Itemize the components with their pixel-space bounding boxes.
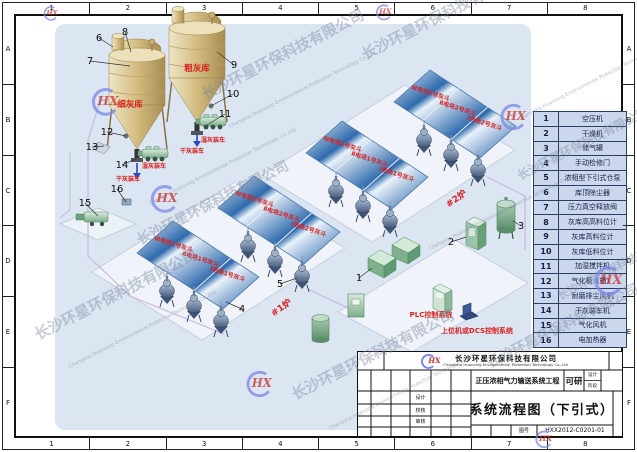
air-dryer	[466, 217, 486, 250]
legend-item-label: 储气罐	[559, 142, 626, 156]
air-tank-2	[312, 315, 329, 344]
frame-rows-left: ABCDEF	[2, 14, 14, 438]
legend-item-number: 8	[534, 215, 558, 229]
legend-item-number: 2	[534, 127, 558, 141]
legend-table: 1空压机2干燥机3储气罐4手动检修门5浓相型下引式仓泵6库顶除尘器7压力真空释放…	[533, 111, 627, 348]
grid-row-label: F	[2, 367, 14, 438]
legend-item-number: 12	[534, 274, 558, 288]
legend-item-number: 4	[534, 156, 558, 170]
design-stage: 可研	[564, 370, 584, 391]
callout-number: 9	[231, 60, 237, 71]
grid-row-label: E	[623, 296, 635, 367]
legend-item-label: 手动检修门	[559, 156, 626, 170]
legend-item-number: 16	[534, 333, 558, 347]
legend-item-label: 气化风机	[559, 319, 626, 333]
legend-item-label: 空压机	[559, 112, 626, 126]
label-wet-load: 湿灰装车	[142, 162, 166, 170]
project-name: 正压浓相气力输送系统工程	[471, 370, 564, 391]
callout-number: 6	[96, 33, 102, 44]
label-coarse-ash-silo: 粗灰库	[184, 63, 210, 74]
callout-number: 10	[227, 89, 240, 100]
plc-cabinet	[433, 284, 452, 314]
grid-col-label: 8	[547, 438, 623, 450]
air-tank	[497, 197, 515, 239]
callout-number: 7	[87, 56, 93, 67]
title-block: HX 长沙环星环保科技有限公司 Changsha Huanxing Enviro…	[357, 351, 623, 437]
callout-number: 1	[356, 273, 362, 284]
grid-row-label: D	[2, 225, 14, 296]
legend-item-number: 10	[534, 245, 558, 259]
legend-item-number: 14	[534, 304, 558, 318]
frame-rows-right: ABCDEF	[623, 14, 635, 438]
callout-number: 3	[518, 221, 524, 232]
grid-row-label: B	[2, 84, 14, 155]
electric-heater	[122, 199, 131, 205]
grid-row-label: F	[623, 367, 635, 438]
label-wet-load: 湿灰装车	[201, 136, 225, 144]
grid-col-label: 7	[471, 438, 547, 450]
grid-row-label: C	[2, 155, 14, 226]
cell-label-check: 校核	[410, 404, 431, 416]
label-dry-load: 干灰装车	[180, 147, 204, 155]
callout-number: 2	[448, 237, 454, 248]
callout-number: 15	[79, 198, 92, 209]
callout-number: 11	[219, 109, 232, 120]
legend-item-label: 干燥机	[559, 127, 626, 141]
legend-item-label: 压力真空释放阀	[559, 201, 626, 215]
grid-col-label: 1	[14, 2, 89, 14]
legend-item-label: 加湿搅拌机	[559, 260, 626, 274]
legend-item-label: 库顶除尘器	[559, 186, 626, 200]
callout-number: 16	[111, 184, 124, 195]
company-header: HX 长沙环星环保科技有限公司 Changsha Huanxing Enviro…	[384, 352, 609, 370]
grid-col-label: 5	[318, 438, 394, 450]
label-plc-system: PLC控制系统	[410, 310, 453, 319]
grid-col-label: 6	[394, 2, 470, 14]
grid-col-label: 2	[89, 2, 165, 14]
callout-number: 5	[277, 279, 283, 290]
legend-item-number: 9	[534, 230, 558, 244]
label-fine-ash-silo: 细灰库	[117, 99, 143, 110]
grid-row-label: A	[623, 14, 635, 84]
legend-item-label: 浓相型下引式仓泵	[559, 171, 626, 185]
cell-label-review: 审核	[410, 416, 431, 427]
frame-columns-bottom: 12345678	[14, 438, 623, 450]
grid-col-label: 8	[547, 2, 623, 14]
legend-item-label: 干灰装车机	[559, 304, 626, 318]
legend-item-number: 11	[534, 260, 558, 274]
legend-item-label: 灰库低料位计	[559, 245, 626, 259]
legend-item-number: 15	[534, 319, 558, 333]
stage-small-bottom: 阶段	[584, 381, 601, 391]
callout-number: 13	[86, 142, 99, 153]
grid-col-label: 4	[242, 438, 318, 450]
drawing-no-label: 图号	[511, 425, 537, 436]
drawing-no: HXX2012-C0201-01	[537, 425, 613, 436]
company-name-en: Changsha Huanxing Environmental Protecti…	[444, 363, 569, 367]
grid-row-label: E	[2, 296, 14, 367]
legend-item-label: 灰库高高料位计	[559, 215, 626, 229]
grid-row-label: C	[623, 155, 635, 226]
drawing-sheet: 12345678 12345678 ABCDEF ABCDEF	[0, 0, 637, 452]
legend-item-number: 3	[534, 142, 558, 156]
grid-col-label: 6	[394, 438, 470, 450]
grid-col-label: 1	[14, 438, 89, 450]
legend-item-label: 气化板（槽）	[559, 274, 626, 288]
drawing-title: 系统流程图（下引式）	[471, 391, 613, 425]
callout-number: 4	[239, 304, 245, 315]
grid-col-label: 3	[166, 2, 242, 14]
callout-number: 14	[116, 160, 129, 171]
grid-row-label: A	[2, 14, 14, 84]
cell-label-design: 设计	[410, 391, 431, 404]
grid-col-label: 4	[242, 2, 318, 14]
label-dcs-system: 上位机或DCS控制系统	[441, 326, 513, 335]
legend-item-label: 电加热器	[559, 333, 626, 347]
grid-col-label: 5	[318, 2, 394, 14]
callout-number: 12	[101, 127, 114, 138]
legend-item-number: 1	[534, 112, 558, 126]
company-logo-icon: HX	[421, 354, 436, 369]
grid-row-label: D	[623, 225, 635, 296]
stage-small-top: 设计	[584, 370, 601, 380]
callout-number: 8	[122, 27, 128, 38]
label-dry-load: 干灰装车	[116, 175, 140, 183]
grid-col-label: 7	[471, 2, 547, 14]
legend-item-number: 7	[534, 201, 558, 215]
legend-item-label: 灰库高料位计	[559, 230, 626, 244]
frame-columns-top: 12345678	[14, 2, 623, 14]
legend-item-number: 6	[534, 186, 558, 200]
grid-col-label: 3	[166, 438, 242, 450]
legend-item-number: 13	[534, 289, 558, 303]
grid-col-label: 2	[89, 438, 165, 450]
control-cabinet	[348, 294, 364, 317]
legend-item-label: 耐磨排尘风机	[559, 289, 626, 303]
grid-row-label: B	[623, 84, 635, 155]
legend-item-number: 5	[534, 171, 558, 185]
